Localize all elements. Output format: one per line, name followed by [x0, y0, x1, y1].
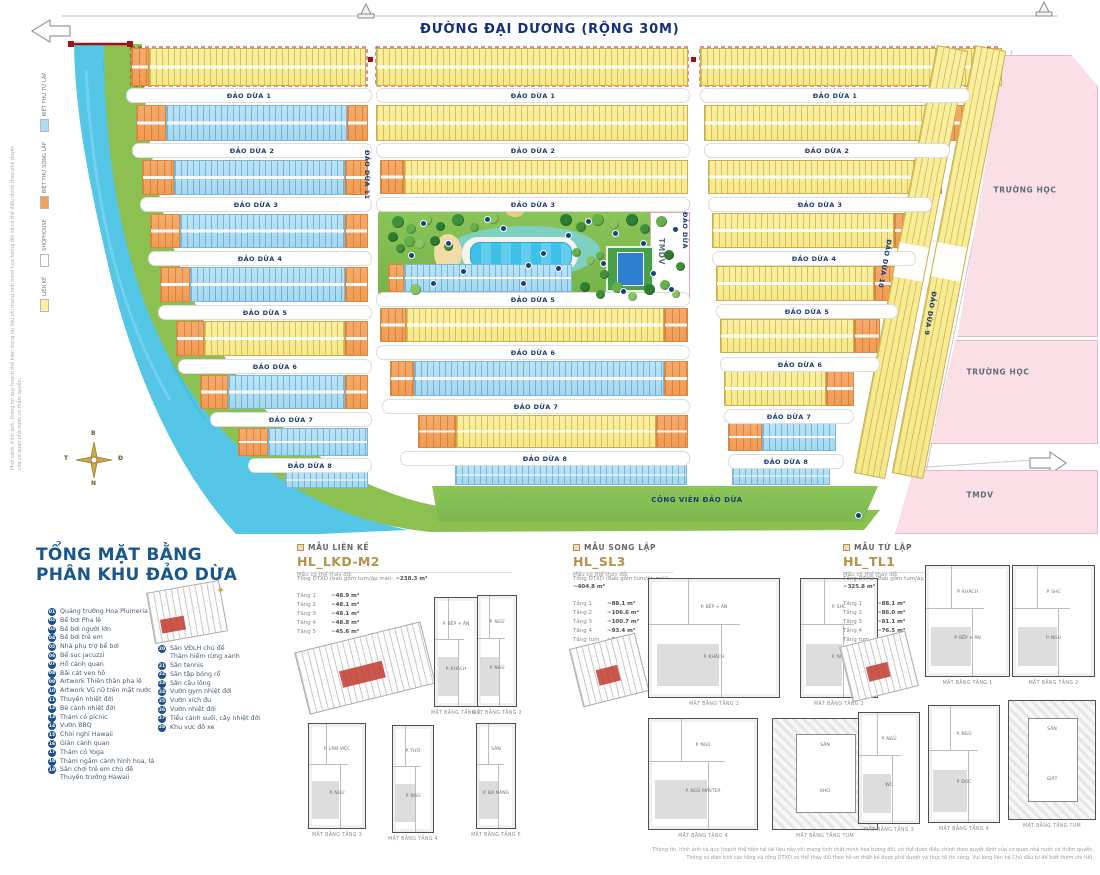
amenity-list-item: 11Thuyền nhiệt đới [48, 696, 113, 704]
street-band: ĐẢO DỪA 6 [178, 359, 372, 374]
plan-wall [489, 596, 490, 638]
plan-wall [477, 764, 504, 765]
lot-strip [732, 467, 830, 485]
amenity-label: Khu vực đỗ xe [170, 724, 215, 732]
street-label: ĐẢO DỪA 2 [511, 147, 556, 155]
street-label: ĐẢO DỪA 6 [253, 363, 298, 371]
lot-strip [345, 321, 368, 356]
amenity-number-badge: 03 [48, 626, 56, 634]
plan-wall [708, 761, 709, 829]
floor-area-row: Tầng 3~100.7 m² [573, 619, 639, 625]
amenity-list-item: 21Sân tennis [158, 662, 203, 670]
amenity-number-badge: 09 [48, 678, 56, 686]
plan-wall [721, 624, 722, 697]
amenity-list-item: 07Hồ cảnh quan [48, 661, 104, 669]
amenity-number-badge: 15 [48, 731, 56, 739]
amenity-list-item: 28Khu vực đỗ xe [158, 724, 215, 732]
plan-shaded-room [438, 657, 458, 696]
lot-strip [762, 423, 836, 451]
floor-area-value: ~88.1 m² [607, 601, 635, 607]
floor-plan: P. NGỦWC [858, 712, 920, 824]
lot-strip [390, 361, 414, 396]
floor-plan: P. NGỦP. NGỦ MASTER [648, 718, 758, 830]
floor-name: Tầng 4 [573, 628, 607, 634]
amenity-label: Sân cầu lông [170, 680, 211, 688]
lot-strip [376, 105, 688, 141]
amenity-label: Bè cảnh nhiệt đới [60, 705, 115, 713]
street-label: ĐẢO DỪA 7 [269, 416, 314, 424]
amenity-list-item: 12Bè cảnh nhiệt đới [48, 705, 115, 713]
model-category-label: MẪU SONG LẬP [584, 543, 656, 552]
plan-caption: MẶT BẰNG TẦNG 5 [471, 833, 521, 838]
street-label: ĐẢO DỪA 8 [523, 455, 568, 463]
lot-strip [406, 308, 664, 342]
floor-plan: P. SHCP. NGỦ [1012, 565, 1095, 677]
floor-name: Tầng 4 [297, 620, 331, 626]
street-band: ĐẢO DỪA 7 [724, 409, 854, 424]
amenity-marker [600, 260, 607, 267]
floor-area-row: Tầng 1~48.9 m² [297, 593, 359, 599]
room-label: P. ĐA NĂNG [483, 791, 509, 796]
road-title: ĐƯỜNG ĐẠI DƯƠNG (RỘNG 30M) [420, 22, 679, 37]
plan-wall [877, 713, 878, 755]
amenity-label: Vườn gym nhiệt đới [170, 688, 232, 696]
plan-caption: MẶT BẰNG TẦNG TUM [796, 834, 854, 839]
amenity-number-badge: 18 [48, 758, 56, 766]
legend-item: LIÊN KẾ [40, 277, 49, 312]
street-band: ĐẢO DỪA 8 [728, 454, 844, 469]
compass: B T Đ N [70, 436, 118, 484]
tree-icon [626, 214, 638, 226]
street-label-rotated: ĐẢO DỪA [681, 212, 689, 249]
amenity-number-badge: 23 [158, 680, 166, 688]
plan-caption: MẶT BẰNG TẦNG 4 [939, 827, 989, 832]
amenity-list-item: 05Nhà phụ trợ bể bơi [48, 643, 119, 651]
plan-caption: MẶT BẰNG TẦNG 1 [689, 702, 739, 707]
compass-east: Đ [118, 455, 123, 462]
amenity-marker [445, 240, 452, 247]
room-label: P. NGỦ [695, 743, 710, 748]
amenity-marker [408, 252, 415, 259]
floor-name: Tầng 3 [843, 619, 877, 625]
model-category: MẪU LIÊN KẾ [297, 543, 369, 552]
floor-name: Tầng 3 [297, 611, 331, 617]
lot-strip [404, 264, 572, 292]
amenity-list-item: 01Quảng trường Hoa Plumeria [48, 608, 148, 616]
tree-icon [596, 290, 605, 299]
plan-wall [649, 761, 725, 762]
amenity-number-badge: 07 [48, 661, 56, 669]
floor-area-value: ~48.9 m² [331, 593, 359, 599]
legend-swatch [40, 299, 49, 312]
keymap-compass-icon: ✦ [216, 584, 225, 597]
street-band: ĐẢO DỪA 2 [376, 143, 690, 158]
tree-icon [416, 240, 425, 249]
street-band: ĐẢO DỪA 4 [148, 251, 372, 266]
floor-name: Tầng 4 [843, 628, 877, 634]
room-label: P. THỜ [405, 749, 420, 754]
plan-shaded-room [863, 774, 892, 814]
plan-caption: MẶT BẰNG TẦNG 3 [864, 828, 914, 833]
floor-area-value: ~86.0 m² [877, 610, 905, 616]
lot-strip [200, 375, 228, 409]
plan-wall [488, 724, 489, 764]
basketball-court [617, 252, 644, 286]
room-label: WC [885, 783, 893, 788]
plan-caption: MẶT BẰNG TẦNG 2 [472, 711, 522, 716]
amenity-list-item: 20Sân VĐLH chủ đềThám hiểm rừng xanh [158, 645, 240, 661]
lot-strip [174, 160, 345, 195]
model-locator-map [569, 633, 649, 708]
street-label: ĐẢO DỪA 5 [243, 309, 288, 317]
amenity-list-item: 14Vườn BBQ [48, 722, 92, 730]
amenity-number-badge: 14 [48, 722, 56, 730]
street-band: ĐẢO DỪA 1 [376, 88, 690, 103]
tree-icon [452, 214, 464, 226]
amenity-label: Tiểu cảnh suối, cây nhiệt đới [170, 715, 260, 723]
tree-icon [610, 220, 619, 229]
tree-icon [576, 222, 586, 232]
amenity-list-item: 04Bể bơi trẻ em [48, 634, 103, 642]
plan-shaded-room [931, 627, 971, 667]
plan-wall [498, 764, 499, 828]
floor-plan: SÂNGIẶT [1008, 700, 1096, 820]
lot-strip [345, 375, 368, 409]
room-label: P. NGỦ [956, 732, 971, 737]
room-label: P. NGỦ [489, 666, 504, 671]
amenity-number-badge: 10 [48, 687, 56, 695]
tree-icon [560, 214, 572, 226]
amenity-number-badge: 12 [48, 705, 56, 713]
model-locator-map [294, 621, 436, 715]
lot-strip [345, 267, 368, 302]
amenity-marker [525, 262, 532, 269]
plan-shaded-room [933, 770, 967, 812]
lot-strip [728, 423, 762, 451]
legend-item: SHOPHOUSE [40, 219, 49, 267]
lot-strip [455, 465, 687, 485]
amenity-label: Sân tập bóng rổ [170, 671, 220, 679]
plan-wall [458, 639, 459, 706]
street-label: ĐẢO DỪA 4 [238, 255, 283, 263]
street-band: ĐẢO DỪA 5 [376, 292, 690, 307]
lot-strip [376, 48, 688, 86]
plan-wall [478, 638, 505, 639]
room-label: SÂN [820, 743, 829, 748]
room-label: GIẶT [1047, 777, 1058, 782]
floor-area-row: Tầng 3~81.1 m² [843, 619, 905, 625]
floor-area-value: ~48.8 m² [331, 620, 359, 626]
amenity-list-item: 10Artwork Vũ nữ trên mặt nước [48, 687, 151, 695]
room-label: P. NGỦ [405, 794, 420, 799]
model-category: MẪU SONG LẬP [573, 543, 656, 552]
legend-swatch [40, 254, 49, 267]
street-label: ĐẢO DỪA 2 [805, 147, 850, 155]
plan-shaded-room [312, 781, 339, 818]
amenity-label: Vườn nhiệt đới [170, 706, 216, 714]
floor-plan: P. NGỦP. NGỦ [477, 595, 517, 707]
plan-shaded-room [479, 781, 497, 818]
floor-area-row: Tầng 5~45.6 m² [297, 629, 359, 635]
amenity-list-item: 19Sân chơi trẻ em chủ đềThuyền trưởng Ha… [48, 766, 133, 782]
page-title: TỔNG MẶT BẰNG PHÂN KHU ĐẢO DỪA [36, 545, 237, 585]
lot-strip [388, 264, 404, 292]
plan-wall [340, 764, 341, 828]
plan-wall [968, 750, 969, 822]
locator-highlight [595, 665, 621, 686]
room-label: P. KHÁCH [446, 667, 467, 672]
street-band: ĐẢO DỪA 3 [140, 197, 372, 212]
gate-icon [358, 4, 374, 18]
tree-icon [628, 292, 637, 301]
amenity-number-badge: 06 [48, 652, 56, 660]
floor-area-value: ~48.1 m² [331, 602, 359, 608]
plan-wall [405, 726, 406, 766]
amenity-number-badge: 11 [48, 696, 56, 704]
footer-disclaimer: Thông tin, hình ảnh và quy hoạch thể hiệ… [480, 846, 1094, 862]
amenity-label: Sân chơi trẻ em chủ đềThuyền trưởng Hawa… [60, 766, 133, 782]
amenity-label: Bể sục jacuzzi [60, 652, 104, 660]
room-label: P. LÀM VIỆC [324, 747, 350, 752]
street-label-rotated: ĐẢO DỪA 11 [363, 150, 371, 199]
lot-strip [854, 319, 880, 353]
lot-strip [712, 213, 894, 248]
floor-area-row: Tầng 1~88.1 m² [573, 601, 635, 607]
street-band: ĐẢO DỪA 7 [210, 412, 372, 427]
lot-strip [176, 321, 204, 356]
street-label: ĐẢO DỪA 1 [511, 92, 556, 100]
coconut-park-band [432, 486, 878, 522]
tree-icon [640, 224, 650, 234]
plan-caption: MẶT BẰNG TẦNG 2 [814, 702, 864, 707]
amenity-number-badge: 08 [48, 670, 56, 678]
legend-label: LIÊN KẾ [42, 277, 48, 296]
model-category-label: MẪU TỨ LẬP [854, 543, 912, 552]
amenity-marker [555, 265, 562, 272]
room-label: P. NGỦ [489, 620, 504, 625]
legend-item: BIỆT THỰ TỨ LẬP [40, 73, 49, 133]
street-label: ĐẢO DỪA 1 [813, 92, 858, 100]
plan-wall [950, 706, 951, 750]
amenity-list-item: 22Sân tập bóng rổ [158, 671, 220, 679]
tree-icon [656, 216, 667, 227]
plan-wall [1058, 608, 1059, 676]
plan-caption: MẶT BẰNG TẦNG 4 [678, 834, 728, 839]
legend-swatch [40, 196, 49, 209]
floor-area-value: ~106.6 m² [607, 610, 639, 616]
amenity-label: Bãi cát ven hồ [60, 670, 105, 678]
amenity-marker [640, 240, 647, 247]
amenity-list-item: 02Bể bơi Pha lê [48, 617, 101, 625]
plan-wall [972, 608, 973, 676]
floor-area-value: ~48.1 m² [331, 611, 359, 617]
plan-caption: MẶT BẰNG TẦNG 3 [312, 833, 362, 838]
amenity-label: Thảm ngắm cảnh hình hoa, lá [60, 758, 154, 766]
tmdv-zone [895, 470, 1098, 534]
locator-highlight [339, 661, 385, 688]
tree-icon [404, 236, 415, 247]
amenity-marker [620, 288, 627, 295]
amenity-number-badge: 21 [158, 662, 166, 670]
masterplan-brochure: ĐƯỜNG ĐẠI DƯƠNG (RỘNG 30M) CÔNG VIÊN ĐẢO… [0, 0, 1100, 875]
gate-icon [1036, 2, 1052, 16]
floor-name: Tầng 2 [297, 602, 331, 608]
lot-strip [826, 371, 854, 406]
plan-wall [859, 755, 901, 756]
lot-strip [204, 321, 345, 356]
street-band: ĐẢO DỪA 5 [158, 305, 372, 320]
amenity-label: Quảng trường Hoa Plumeria [60, 608, 148, 616]
street-label: ĐẢO DỪA 2 [230, 147, 275, 155]
tree-icon [388, 232, 398, 242]
lot-strip [150, 214, 180, 248]
amenity-number-badge: 04 [48, 634, 56, 642]
room-label: P. BẾP + ĂN [701, 605, 728, 610]
amenity-number-badge: 27 [158, 715, 166, 723]
model-code: HL_LKD-M2 [297, 554, 512, 573]
compass-north: B [91, 430, 96, 437]
street-label: ĐẢO DỪA 6 [511, 349, 556, 357]
legend-label: SHOPHOUSE [42, 219, 48, 251]
amenity-list-item: 27Tiểu cảnh suối, cây nhiệt đới [158, 715, 260, 723]
plan-wall [929, 750, 978, 751]
floor-area-value: ~100.7 m² [607, 619, 639, 625]
tree-icon [436, 222, 445, 231]
road-arrow-left-icon [32, 20, 70, 42]
amenity-marker [650, 270, 657, 277]
compass-rose-icon [70, 436, 118, 484]
lot-strip [166, 105, 347, 141]
plan-wall [309, 764, 348, 765]
amenity-list-item: 15Chòi nghỉ Hawaii [48, 731, 113, 739]
amenity-marker [612, 230, 619, 237]
footer-line2: Thông số diện tích các tầng và tổng DTXD… [480, 854, 1094, 862]
plan-caption: MẶT BẰNG TẦNG TUM [1023, 824, 1081, 829]
lot-strip [724, 371, 826, 406]
room-label: SÂN [1047, 727, 1056, 732]
street-label: ĐẢO DỪA 1 [227, 92, 272, 100]
plan-wall [892, 755, 893, 823]
model-code: HL_SL3 [573, 554, 673, 573]
lot-strip [414, 361, 664, 396]
tree-icon [676, 262, 685, 271]
room-label: P. NGỦ MASTER [686, 789, 721, 794]
amenity-label: Vườn BBQ [60, 722, 92, 730]
plan-caption: MẶT BẰNG TẦNG 1 [943, 681, 993, 686]
street-band: ĐẢO DỪA 8 [248, 458, 372, 473]
street-band: ĐẢO DỪA 5 [716, 304, 898, 319]
amenity-marker [668, 286, 675, 293]
amenity-number-badge: 28 [158, 724, 166, 732]
amenity-list-item: 03Bể bơi người lớn [48, 626, 111, 634]
amenity-marker [672, 226, 679, 233]
tree-icon [430, 236, 440, 246]
street-label: ĐẢO DỪA 3 [511, 201, 556, 209]
lot-strip [131, 48, 149, 86]
legend-item: BIỆT THỰ SONG LẬP [40, 142, 49, 209]
street-label: ĐẢO DỪA 3 [234, 201, 279, 209]
room-label: P. BẾP + ĂN [443, 622, 470, 627]
tree-icon [644, 284, 655, 295]
amenity-list-item: 26Vườn nhiệt đới [158, 706, 216, 714]
street-label: ĐẢO DỪA 3 [798, 201, 843, 209]
lot-strip [720, 319, 854, 353]
tree-icon [596, 252, 604, 260]
room-label: P. KHÁCH [957, 590, 978, 595]
floor-name: Tầng 2 [573, 610, 607, 616]
model-bullet-icon [297, 544, 304, 551]
lot-strip [180, 214, 345, 248]
street-label: ĐẢO DỪA 6 [778, 361, 823, 369]
plan-shaded-room [480, 657, 498, 697]
floor-area-row: Tầng 4~93.4 m² [573, 628, 635, 634]
lot-strip [347, 105, 368, 141]
master-plan-map: ĐƯỜNG ĐẠI DƯƠNG (RỘNG 30M) CÔNG VIÊN ĐẢO… [0, 0, 1100, 535]
lot-strip [418, 415, 456, 448]
plan-wall [688, 579, 689, 624]
tree-icon [580, 282, 590, 292]
floor-name: Tầng 1 [297, 593, 331, 599]
room-label: P. NGỦ [881, 737, 896, 742]
legend-label: BIỆT THỰ TỨ LẬP [42, 73, 48, 117]
amenity-list-item: 24Vườn gym nhiệt đới [158, 688, 232, 696]
amenity-label: Thảm cỏ picnic [60, 714, 108, 722]
keymap-highlight [160, 616, 186, 634]
area-label: TMDV [966, 491, 993, 500]
plan-wall [499, 638, 500, 706]
amenity-marker [420, 220, 427, 227]
floor-plan: P. LÀM VIỆCP. NGỦ [308, 723, 366, 829]
street-label: ĐẢO DỪA 7 [514, 403, 559, 411]
map-side-note: Phối cảnh, hình ảnh, thông tin quy hoạch… [10, 140, 24, 470]
tree-icon [406, 224, 416, 234]
plan-wall [393, 766, 421, 767]
tree-icon [592, 214, 604, 226]
tree-icon [664, 250, 674, 260]
floor-area-row: Tầng 2~106.6 m² [573, 610, 639, 616]
amenity-label: Nhà phụ trợ bể bơi [60, 643, 119, 651]
amenity-label: Thảm cỏ Yoga [60, 749, 104, 757]
floor-plan: SÂNP. ĐA NĂNG [476, 723, 516, 829]
amenity-marker [540, 250, 547, 257]
plan-wall [1013, 608, 1070, 609]
amenity-label: Hồ cảnh quan [60, 661, 104, 669]
model-bullet-icon [573, 544, 580, 551]
tree-icon [392, 216, 404, 228]
floor-plan: P. NGỦP. ĐỌC [928, 705, 1000, 823]
floor-area-value: ~88.1 m² [877, 601, 905, 607]
street-label: ĐẢO DỪA 8 [288, 462, 333, 470]
plan-wall [435, 639, 464, 640]
lot-strip [345, 214, 368, 248]
street-band: ĐẢO DỪA 2 [132, 143, 372, 158]
amenity-label: Bể bơi Pha lê [60, 617, 101, 625]
lot-strip [716, 266, 874, 301]
lot-strip [149, 48, 366, 86]
lot-strip [142, 160, 174, 195]
street-label: ĐẢO DỪA 7 [767, 413, 812, 421]
plan-shaded-room [806, 644, 842, 686]
amenity-number-badge: 26 [158, 706, 166, 714]
area-label: TRƯỜNG HỌC [967, 368, 1030, 377]
floor-plan: P. BẾP + ĂNP. KHÁCH [434, 597, 478, 707]
lot-strip [268, 428, 368, 456]
tree-icon [586, 256, 595, 265]
tree-icon [396, 244, 405, 253]
lot-strip [456, 415, 656, 448]
room-label: P. SHC [1046, 590, 1060, 595]
amenity-marker [430, 280, 437, 287]
